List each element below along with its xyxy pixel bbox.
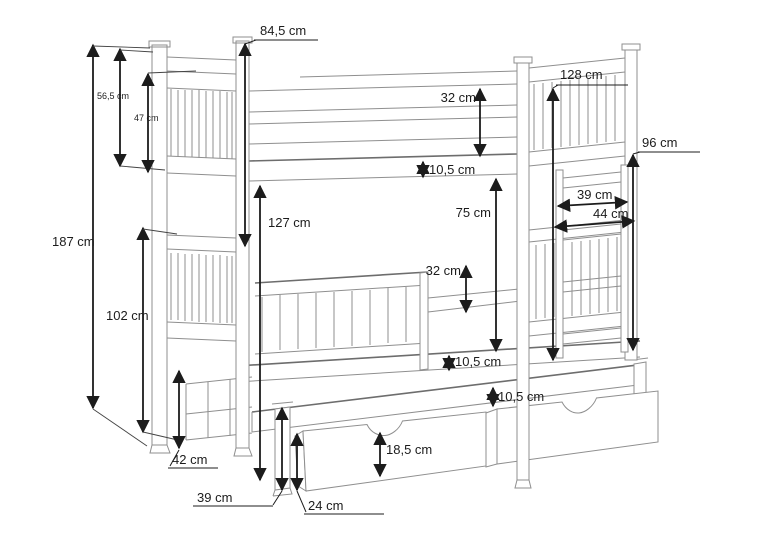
ladder-stile-right — [621, 165, 628, 352]
technical-drawing-page: 84,5 cm 187 cm 56,5 cm 47 cm 127 cm 102 … — [0, 0, 766, 542]
dim-label-upper-bunk-rail-top: 128 cm — [560, 67, 603, 82]
right-drawer-side — [486, 409, 497, 467]
dim-label-upper-headboard: 56,5 cm — [97, 91, 129, 101]
dim-label-right-lower-section: 96 cm — [642, 135, 677, 150]
dim-label-drawer-front: 18,5 cm — [386, 442, 432, 457]
dim-label-upper-guard-rail: 32 cm — [441, 90, 476, 105]
dim-label-lower-section: 102 cm — [106, 308, 149, 323]
dim-label-top-post-section: 84,5 cm — [260, 23, 306, 38]
bunk-bed-diagram: 84,5 cm 187 cm 56,5 cm 47 cm 127 cm 102 … — [0, 0, 766, 542]
bottom-bunk-base — [236, 288, 640, 382]
dim-label-trundle-left-end: 42 cm — [172, 452, 207, 467]
dim-label-total-height: 187 cm — [52, 234, 95, 249]
top-bunk-front-rails — [249, 71, 517, 181]
bed-structure — [149, 37, 658, 496]
dim-label-lower-base: 10,5 cm — [455, 354, 501, 369]
ladder-stile-left — [556, 170, 563, 358]
storage-drawers — [295, 391, 658, 491]
dim-label-lower-guard-rail: 32 cm — [426, 263, 461, 278]
dim-label-under-upper-bunk: 127 cm — [268, 215, 311, 230]
dim-label-trundle-gap: 10,5 cm — [498, 389, 544, 404]
dim-label-drawer-total: 24 cm — [308, 498, 343, 513]
dim-label-trundle-post: 39 cm — [197, 490, 232, 505]
dim-label-upper-headboard-slats: 47 cm — [134, 113, 159, 123]
dim-label-upper-to-trundle: 75 cm — [456, 205, 491, 220]
front-right-post — [517, 63, 529, 480]
front-left-post — [236, 41, 249, 448]
back-left-post — [152, 45, 167, 445]
left-headboard — [149, 37, 252, 456]
dim-label-upper-base: 10,5 cm — [429, 162, 475, 177]
dim-label-ladder-outer: 44 cm — [593, 206, 628, 221]
dim-label-ladder-inner: 39 cm — [577, 187, 612, 202]
